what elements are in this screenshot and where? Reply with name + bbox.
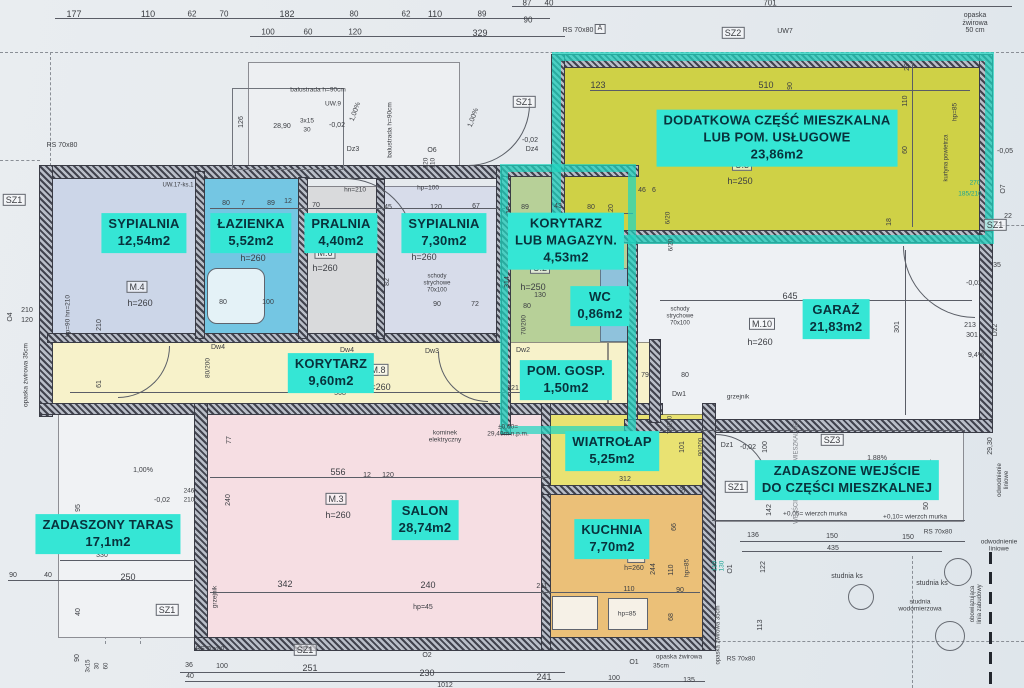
dim-text: 110	[623, 586, 634, 594]
dim-text: 142	[766, 504, 774, 516]
dim-text: Dz1	[721, 442, 733, 450]
dim-text: Dw1	[672, 391, 686, 399]
dim-text: h=250	[520, 282, 545, 292]
dim-text: opaska żwirowa 35cm	[716, 605, 723, 664]
dim-text: 240	[420, 580, 435, 590]
dim-text: -0,02	[329, 122, 345, 130]
dim-text: 90	[433, 301, 441, 309]
dim-text: 90/200	[699, 438, 706, 456]
dim-text: 270	[970, 179, 981, 186]
dim-text: 3x15	[300, 117, 314, 124]
dimension-line	[742, 551, 942, 552]
dimension-line	[740, 541, 965, 542]
dim-text: 70	[220, 9, 229, 18]
dim-text: 6/20	[667, 239, 674, 252]
dim-text: kominek elektryczny	[429, 430, 462, 445]
dim-text: 101	[679, 441, 687, 453]
marker-sz1: SZ1	[156, 604, 179, 616]
dim-text: 7	[241, 200, 245, 208]
room-label-kuchnia: KUCHNIA7,70m2	[574, 519, 649, 559]
dim-text: 6/20	[664, 212, 671, 225]
dim-text: 45	[384, 204, 392, 212]
wall	[650, 340, 660, 422]
dim-text: 40	[545, 0, 554, 8]
dim-text: opaska żwirowa	[951, 12, 1000, 28]
dim-text: UW7	[777, 28, 793, 36]
dim-text: opaska żwirowa	[656, 653, 702, 660]
dim-text: 701	[763, 0, 776, 8]
dim-text: Dw2	[516, 347, 530, 355]
dim-text: Dw4	[211, 344, 225, 352]
room-label-line: DODATKOWA CZĘŚĆ MIESZKALNA	[664, 113, 891, 130]
dim-text: O1	[629, 659, 638, 667]
room-label-lazienka: ŁAZIENKA5,52m2	[210, 213, 291, 253]
dim-text: 113	[757, 619, 765, 630]
dim-text: 110	[141, 9, 155, 19]
dim-text: 1,00%	[133, 467, 153, 475]
dim-text: 110	[428, 9, 442, 19]
dim-text: UW.17-ks.1	[162, 183, 193, 190]
dim-text: odwodnienie liniowe	[997, 463, 1011, 497]
room-label-dodatkowa: DODATKOWA CZĘŚĆ MIESZKALNALUB POM. USŁUG…	[657, 110, 898, 167]
dim-text: 122	[760, 561, 768, 573]
dim-text: studnia ks	[831, 573, 863, 581]
dim-text: 244	[650, 563, 658, 575]
dimension-line	[8, 580, 193, 581]
room-label-line: 9,60m2	[295, 373, 367, 390]
dim-text: 120	[348, 27, 361, 36]
dim-text: 250	[120, 572, 135, 582]
dim-text: 50 cm	[965, 27, 984, 35]
dim-text: 80	[219, 299, 227, 307]
dimension-line	[660, 430, 965, 431]
dim-text: -0,02	[522, 137, 538, 145]
dim-text: 185/210	[958, 190, 982, 197]
dim-text: 80/200	[204, 358, 211, 378]
dim-text: 130	[718, 561, 725, 572]
dim-text: 60	[902, 146, 910, 154]
room-label-line: WC	[577, 289, 622, 306]
dim-text: studnia wodomierzowa	[898, 599, 941, 614]
dim-text: 110	[429, 158, 436, 168]
room-label-line: PRALNIA	[311, 216, 370, 233]
dim-text: 110	[668, 564, 676, 575]
dim-text: 35	[993, 262, 1001, 270]
dim-text: 301	[966, 332, 978, 340]
room-label-taras: ZADASZONY TARAS17,1m2	[35, 514, 180, 554]
dim-text: 121	[507, 385, 519, 393]
dim-text: 100	[262, 299, 274, 307]
marker-sz3: SZ3	[821, 434, 844, 446]
dim-text: 12	[284, 198, 292, 206]
dim-text: O1	[727, 564, 735, 573]
dim-text: 80	[587, 204, 595, 212]
room-label-line: 0,86m2	[577, 306, 622, 323]
marker-m.3: M.3	[325, 493, 346, 505]
room-label-line: 28,74m2	[399, 520, 452, 537]
room-label-line: 21,83m2	[810, 319, 863, 336]
dim-text: 77	[226, 436, 234, 444]
dim-text: 80	[222, 200, 230, 208]
dim-text: Dw3	[425, 348, 439, 356]
dim-text: 6	[652, 187, 656, 195]
dim-text: RS 70x80	[563, 27, 594, 35]
room-label-korytarz: KORYTARZ9,60m2	[288, 353, 374, 393]
room-label-pom-gosp: POM. GOSP.1,50m2	[520, 360, 612, 400]
dim-text: O4	[7, 312, 15, 321]
dim-text: O7	[1000, 184, 1008, 193]
dim-text: 182	[279, 9, 294, 19]
room-label-line: ZADASZONE WEJŚCIE	[762, 463, 932, 480]
dim-text: 120	[21, 317, 33, 325]
dim-text: hp=85	[951, 103, 958, 121]
dim-text: 89	[478, 9, 487, 18]
dim-text: 80	[681, 372, 689, 380]
dim-text: h=250	[727, 176, 752, 186]
dim-text: 89	[521, 204, 529, 212]
dim-text: 18	[886, 218, 894, 226]
dim-text: 36	[185, 662, 193, 670]
dim-text: 230	[419, 668, 434, 678]
dim-text: 120	[430, 204, 442, 212]
dim-text: 70/200	[668, 416, 675, 434]
dim-text: 62	[402, 9, 411, 18]
dim-text: 35cm	[653, 662, 669, 669]
room-label-line: SALON	[399, 503, 452, 520]
dim-text: Dz4	[526, 146, 538, 154]
dim-text: 251	[302, 663, 317, 673]
dimension-line	[905, 250, 906, 415]
dim-text: odwodnienie liniowe	[981, 539, 1018, 554]
dimension-line	[60, 560, 195, 561]
dim-text: 60	[104, 663, 111, 670]
marker-sz1: SZ1	[513, 96, 536, 108]
dim-text: 342	[277, 579, 292, 589]
room-label-line: 1,50m2	[527, 380, 605, 397]
room-label-line: SYPIALNIA	[408, 216, 479, 233]
dim-text: hp=85	[618, 610, 636, 617]
dim-text: 120	[382, 472, 394, 480]
room-label-line: ZADASZONY TARAS	[42, 517, 173, 534]
dim-text: 62	[188, 9, 197, 18]
room-label-zadaszone-wejscie: ZADASZONE WEJŚCIEDO CZĘŚCI MIESZKALNEJ	[755, 460, 939, 500]
dim-text: 43	[554, 203, 562, 211]
dim-text: 79	[641, 372, 649, 380]
dim-text: hp=85	[683, 559, 690, 577]
dim-text: 210	[96, 319, 104, 331]
dim-text: 70	[312, 202, 320, 210]
dim-text: 40	[186, 673, 194, 681]
room-label-korytarz-magazyn: KORYTARZLUB MAGAZYN.4,53m2	[508, 213, 624, 270]
dim-text: 213	[964, 322, 976, 330]
room-label-line: 7,70m2	[581, 539, 642, 556]
dim-text: O6	[427, 147, 436, 155]
room-label-line: GARAŻ	[810, 302, 863, 319]
wall	[195, 404, 207, 650]
dim-text: studnia ks	[916, 580, 948, 588]
wall	[40, 166, 52, 416]
room-salon	[207, 414, 543, 638]
dim-text: kurtyna powietrza	[944, 134, 951, 181]
dim-text: 46	[638, 187, 646, 195]
dim-text: h=260	[411, 252, 436, 262]
room-label-line: KUCHNIA	[581, 522, 642, 539]
marker-sz1: SZ1	[294, 644, 317, 656]
boundary-line	[912, 556, 913, 688]
dim-text: 1012	[437, 682, 453, 688]
room-label-line: 23,86m2	[664, 146, 891, 163]
dimension-line	[512, 6, 1012, 7]
dim-text: 177	[66, 9, 81, 19]
dim-text: 50	[923, 502, 931, 510]
room-label-sypialnia-2: SYPIALNIA7,30m2	[401, 213, 486, 253]
dim-text: Dz2	[992, 324, 1000, 336]
room-label-line: 5,25m2	[572, 451, 652, 468]
dim-text: 60	[304, 27, 313, 36]
dim-text: 100	[216, 663, 228, 671]
dim-text: 312	[619, 476, 631, 484]
dim-text: 12	[363, 472, 371, 480]
dim-text: 135	[683, 677, 695, 685]
dim-text: RS 70x80	[924, 528, 953, 535]
dim-text: obowiązująca linia zabudowy	[970, 581, 984, 628]
dim-text: hp=90 hn=210	[64, 295, 71, 337]
dim-text: 3x15	[86, 659, 93, 672]
dim-text: 40	[44, 572, 52, 580]
room-label-line: 17,1m2	[42, 534, 173, 551]
room-label-wc: WC0,86m2	[570, 286, 629, 326]
dim-text: h=260	[312, 263, 337, 273]
room-label-line: ŁAZIENKA	[217, 216, 284, 233]
dimension-line	[55, 18, 550, 19]
wall	[299, 178, 307, 338]
dim-text: 645	[782, 291, 797, 301]
room-label-wiatrolap: WIATROŁAP5,25m2	[565, 431, 659, 471]
dim-text: 29,30	[987, 437, 995, 455]
dim-text: 82	[384, 278, 392, 286]
room-label-line: 4,53m2	[515, 249, 617, 266]
dim-text: 30	[303, 126, 310, 133]
dim-text: Dz3	[347, 146, 359, 154]
dim-text: 210	[21, 307, 33, 315]
room-label-pralnia: PRALNIA4,40m2	[304, 213, 377, 253]
dim-text: hp=45	[413, 604, 433, 612]
dim-text: 28,90	[273, 123, 291, 131]
dim-text: ±0,00= 29,40m n.p.m.	[487, 424, 529, 439]
wall	[48, 334, 510, 342]
dim-text: h=260	[240, 253, 265, 263]
dim-text: UW.9	[325, 100, 341, 107]
dim-text: 90	[9, 572, 17, 580]
well-circle	[848, 584, 874, 610]
dim-text: schody strychowe 70x100	[423, 274, 450, 295]
room-label-line: WIATROŁAP	[572, 434, 652, 451]
fixture	[207, 268, 265, 324]
dim-text: 59	[680, 485, 688, 493]
marker-sz1: SZ1	[3, 194, 26, 206]
wall	[196, 172, 204, 338]
dim-text: 95	[75, 504, 83, 512]
marker-sz1: SZ1	[984, 219, 1007, 231]
dim-text: 89	[267, 200, 275, 208]
marker-a: A	[595, 24, 606, 34]
dim-text: 9,4%	[968, 352, 984, 360]
dim-text: 61	[96, 380, 104, 388]
dim-text: -0,02	[154, 497, 170, 505]
dim-text: 87	[523, 0, 532, 8]
dim-text: 556	[330, 467, 345, 477]
dim-text: 66	[671, 523, 679, 531]
dim-text: 90	[74, 654, 82, 662]
dim-text: 240	[225, 494, 233, 506]
dim-text: -0,02	[740, 444, 756, 452]
room-label-line: KORYTARZ	[515, 216, 617, 233]
dim-text: O2	[422, 652, 431, 660]
room-label-line: LUB MAGAZYN.	[515, 233, 617, 250]
marker-m.4: M.4	[126, 281, 147, 293]
dim-text: 123	[590, 80, 605, 90]
dim-text: 80	[350, 9, 359, 18]
dim-text: 210	[184, 496, 195, 503]
dim-text: 130	[534, 292, 546, 300]
dim-text: 90	[787, 82, 795, 90]
boundary-line	[0, 160, 40, 161]
dim-text: h=260	[624, 565, 644, 573]
dim-text: 435	[827, 545, 839, 553]
room-label-line: LUB POM. USŁUGOWE	[664, 130, 891, 147]
room-label-garaz: GARAŻ21,83m2	[803, 299, 870, 339]
marker-sz1: SZ1	[725, 481, 748, 493]
room-label-line: 4,40m2	[311, 233, 370, 250]
marker-m.10: M.10	[749, 318, 775, 330]
dim-text: 80	[523, 303, 531, 311]
dim-text: -0,05	[997, 148, 1013, 156]
wall	[542, 404, 550, 650]
dim-text: 100	[261, 27, 274, 36]
dimension-line	[210, 477, 550, 478]
room-label-salon: SALON28,74m2	[392, 500, 459, 540]
dim-text: 314	[504, 276, 512, 288]
dim-text: h=260	[747, 337, 772, 347]
plan: 1771106270182806211089874070190100601203…	[0, 0, 1024, 688]
dim-text: 510	[758, 80, 773, 90]
dim-text: 100	[762, 441, 770, 453]
dim-text: h=260	[325, 510, 350, 520]
dim-text: grzejnik	[211, 586, 218, 608]
fixture	[552, 596, 598, 630]
dim-text: 29	[904, 63, 912, 71]
boundary-line	[688, 641, 1024, 642]
dim-text: 211	[536, 583, 547, 591]
dim-text: RS 70x80	[196, 645, 225, 652]
room-label-sypialnia-1: SYPIALNIA12,54m2	[101, 213, 186, 253]
dim-text: balustrada h=90cm	[290, 86, 345, 93]
dim-text: grzejnik	[727, 393, 749, 400]
dim-text: 150	[826, 533, 838, 541]
dim-text: 100	[608, 675, 620, 683]
dim-text: 30	[95, 663, 102, 670]
well-circle	[935, 621, 965, 651]
building-line	[989, 552, 992, 688]
dim-text: hn=210	[344, 186, 366, 193]
dim-text: 72	[471, 301, 479, 309]
dim-text: 40	[75, 608, 83, 616]
dim-text: 301	[894, 321, 902, 333]
dim-text: -0,02	[966, 280, 982, 288]
dim-text: 90	[524, 15, 533, 24]
room-label-line: KORYTARZ	[295, 356, 367, 373]
dim-text: 329	[472, 28, 487, 38]
dim-text: 241	[536, 672, 551, 682]
dimension-line	[250, 36, 565, 37]
dim-text: 126	[238, 116, 246, 128]
dim-text: hp=100	[417, 184, 439, 191]
room-label-line: 7,30m2	[408, 233, 479, 250]
dim-text: 67	[472, 203, 480, 211]
wall	[980, 232, 992, 432]
dim-text: 68	[668, 613, 676, 621]
dimension-line	[180, 672, 565, 673]
dim-text: 246	[184, 487, 195, 494]
dim-text: balustrada h=90cm	[386, 102, 393, 157]
dim-text: 90	[676, 587, 684, 595]
marker-sz2: SZ2	[722, 27, 745, 39]
dim-text: 150	[902, 534, 914, 542]
dim-text: +0,10= wierzch murka	[883, 513, 947, 520]
dim-text: RS 70x80	[47, 142, 78, 150]
dim-text: 110	[902, 95, 910, 106]
room-label-line: DO CZĘŚCI MIESZKALNEJ	[762, 480, 932, 497]
wall	[195, 638, 715, 650]
room-label-line: POM. GOSP.	[527, 363, 605, 380]
room-sypialnia-1	[50, 178, 197, 335]
room-label-line: 12,54m2	[108, 233, 179, 250]
dim-text: 136	[747, 532, 759, 540]
dim-text: 70/200	[520, 315, 527, 335]
room-label-line: 5,52m2	[217, 233, 284, 250]
room-label-line: SYPIALNIA	[108, 216, 179, 233]
dim-text: opaska żwirowa 35cm	[22, 343, 29, 407]
dim-text: h=260	[127, 298, 152, 308]
dim-text: RS 70x80	[727, 655, 756, 662]
dim-text: schody strychowe 70x100	[666, 307, 693, 328]
